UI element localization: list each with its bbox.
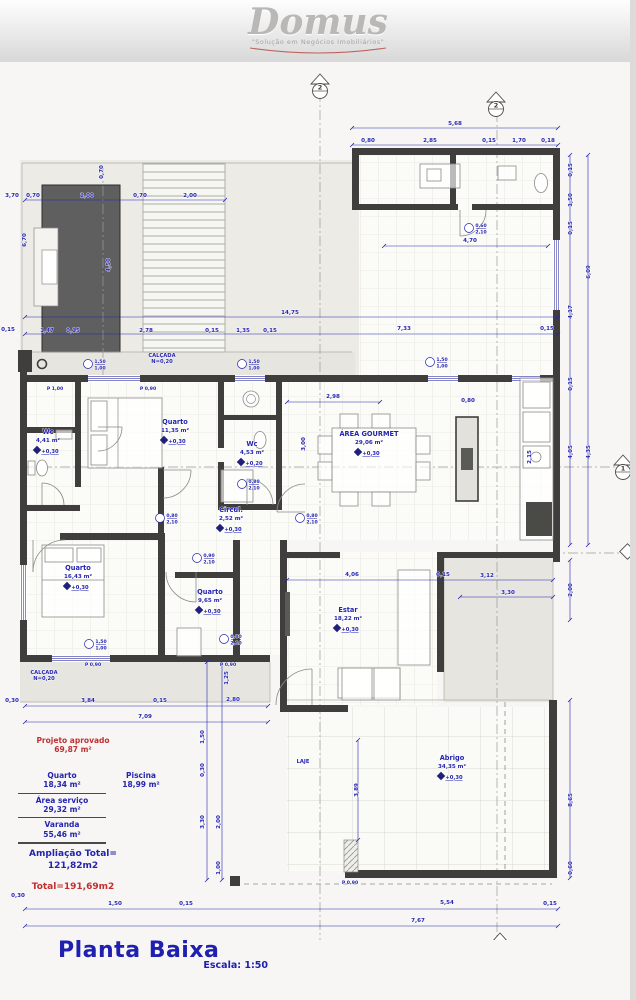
room-level: +0,20: [245, 461, 263, 467]
marker-number: 2: [318, 84, 323, 92]
wall: [230, 876, 240, 886]
door-tag: P 0,90: [140, 386, 156, 392]
room-area: 29,06 m²: [355, 439, 383, 446]
deck-hatch: [143, 163, 225, 352]
room-name: Abrigo: [440, 754, 465, 762]
dimension-label: 14,75: [281, 310, 299, 316]
dimension-label: 0,15: [568, 377, 574, 391]
dimension-label: 1,50: [200, 730, 206, 744]
dimension-label: 2,00: [216, 815, 222, 829]
logo-swoosh-icon: [248, 46, 388, 56]
legend-item-area-servico: Área serviço29,32 m²: [18, 794, 106, 819]
wall: [472, 204, 560, 210]
opening-tag-icon: [238, 360, 247, 369]
opening-height: 1,00: [436, 364, 447, 370]
room-name: Wc: [246, 440, 257, 448]
opening-height: 1,00: [248, 366, 259, 372]
dimension-label: 3,30: [200, 815, 206, 829]
dimension-label: 2,00: [183, 193, 197, 199]
dimension-label: 0,15: [543, 901, 557, 907]
furniture: [498, 166, 516, 180]
legend-item-piscina: Piscina18,99 m²: [106, 769, 176, 844]
room-area: 16,43 m²: [64, 573, 92, 580]
wall: [218, 415, 280, 420]
wall: [60, 533, 160, 540]
opening-height: 2,10: [475, 230, 486, 236]
opening-height: 1,00: [95, 646, 106, 652]
dimension-label: 1,70: [512, 138, 526, 144]
door-leaf-hatch: [344, 840, 358, 872]
annotation-label: N=0,20: [151, 359, 173, 365]
dimension-label: 6,70: [22, 233, 28, 247]
marker-triangle-icon: [491, 933, 509, 940]
furniture: [372, 492, 390, 506]
dimension-label: 0,18: [541, 138, 555, 144]
room-area: 18,22 m²: [334, 615, 362, 622]
opening-width: 0,80: [248, 479, 259, 485]
dimension-label: 0,70: [26, 193, 40, 199]
furniture: [372, 414, 390, 428]
dimension-label: 1,50: [108, 901, 122, 907]
wall: [345, 870, 557, 878]
dimension-label: 3,89: [354, 783, 360, 797]
dimension-label: 2,00: [80, 193, 94, 199]
furniture: [342, 668, 372, 700]
dimension-label: 2,98: [326, 394, 340, 400]
dimension-label: 0,15: [436, 572, 450, 578]
dimension-label: 1,50: [568, 193, 574, 207]
room-area: 2,52 m²: [219, 515, 244, 522]
opening-tag-icon: [465, 224, 474, 233]
marker-triangle-icon: [311, 74, 329, 84]
marker-number: 2: [494, 102, 499, 110]
total-area: Total=191,69m2: [18, 882, 128, 892]
opening-tag-icon: [238, 480, 247, 489]
ground-shade: [20, 662, 270, 702]
room-level: +0,30: [341, 627, 359, 633]
opening-width: 0,80: [306, 513, 317, 519]
floor-grid: [287, 707, 549, 871]
dimension-label: 4,35: [586, 445, 592, 459]
furniture: [91, 401, 107, 431]
approved-project-label: Projeto aprovado 69,87 m²: [18, 736, 128, 755]
dimension-label: 0,80: [361, 138, 375, 144]
room-level: +0,30: [362, 451, 380, 457]
dimension-label: 5,54: [440, 900, 454, 906]
pool-bench: [42, 250, 57, 284]
marker-number: 1: [621, 465, 626, 473]
wall: [280, 552, 340, 558]
room-level: +0,30: [224, 527, 242, 533]
room-name: Estar: [338, 606, 358, 614]
dimension-label: 0,15: [568, 221, 574, 235]
opening-height: 1,00: [94, 366, 105, 372]
furniture: [340, 414, 358, 428]
opening-width: 1,50: [436, 357, 447, 363]
dimension-label: 2,78: [139, 328, 153, 334]
dimension-label: 3,00: [301, 437, 307, 451]
opening-tag-icon: [193, 554, 202, 563]
dimension-label: 0,15: [263, 328, 277, 334]
dimension-label: 0,15: [482, 138, 496, 144]
dimension-label: 2,80: [226, 697, 240, 703]
title-block: Planta Baixa Escala: 1:50: [58, 938, 288, 971]
toilet: [37, 460, 48, 476]
room-level: +0,30: [445, 775, 463, 781]
opening-tag-icon: [296, 514, 305, 523]
dimension-label: 0,30: [11, 893, 25, 899]
dimension-label: 1,25: [224, 671, 230, 685]
room-name: Wc: [42, 428, 53, 436]
ground-shade: [20, 352, 355, 375]
door-tag: P 0,90: [342, 880, 358, 886]
opening-height: 2,10: [166, 520, 177, 526]
opening-width: 0,80: [166, 513, 177, 519]
dimension-label: 3,70: [5, 193, 19, 199]
wall: [158, 467, 164, 537]
opening-tag-icon: [426, 358, 435, 367]
dimension-label: 4,06: [345, 572, 359, 578]
dimension-label: 0,15: [66, 328, 80, 334]
dimension-label: 0,15: [179, 901, 193, 907]
room-level: +0,30: [71, 585, 89, 591]
annotation-label: N=0,20: [33, 676, 55, 682]
dimension-label: 0,30: [5, 698, 19, 704]
door-tag: P 0,90: [220, 662, 236, 668]
washer: [243, 391, 259, 407]
room-name: ÁREA GOURMET: [339, 429, 399, 438]
wall: [276, 375, 282, 510]
dimension-label: 0,15: [205, 328, 219, 334]
furniture: [523, 412, 550, 442]
dimension-label: 1,35: [236, 328, 250, 334]
opening-width: 1,50: [95, 639, 106, 645]
dimension-label: 0,30: [200, 763, 206, 777]
wall: [280, 705, 348, 712]
marker-triangle-icon: [487, 92, 505, 102]
furniture: [177, 628, 201, 656]
dimension-label: 3,12: [480, 573, 494, 579]
furniture: [28, 461, 35, 475]
dimension-label: 0,70: [99, 165, 105, 179]
dimension-label: 1,00: [216, 861, 222, 875]
dimension-label: 4,70: [463, 238, 477, 244]
page-edge-shadow: [630, 0, 636, 1000]
opening-width: 0,80: [230, 634, 241, 640]
room-name: Quarto: [197, 588, 223, 596]
opening-width: 1,50: [248, 359, 259, 365]
dimension-label: 7,09: [138, 714, 152, 720]
wall: [437, 552, 557, 558]
room-name: Quarto: [162, 418, 188, 426]
wall: [175, 572, 235, 578]
room-area: 4,53 m²: [240, 449, 265, 456]
wall: [218, 375, 224, 448]
room-level: +0,30: [41, 449, 59, 455]
room-level: +0,30: [168, 439, 186, 445]
ground-shade: [444, 556, 553, 702]
opening-height: 2,10: [230, 641, 241, 647]
dimension-label: 0,15: [1, 327, 15, 333]
door-tag: P 1,00: [47, 386, 63, 392]
furniture: [416, 436, 430, 454]
dimension-label: 4,17: [568, 305, 574, 319]
opening-width: 0,90: [203, 553, 214, 559]
furniture: [318, 436, 332, 454]
dimension-label: 4,50: [106, 258, 112, 272]
room-area: 11,35 m²: [161, 427, 189, 434]
dimension-label: 0,70: [133, 193, 147, 199]
dimension-label: 0,60: [568, 861, 574, 875]
opening-height: 2,10: [248, 486, 259, 492]
dimension-label: 0,15: [153, 698, 167, 704]
opening-tag-icon: [84, 360, 93, 369]
dimension-label: 0,15: [540, 326, 554, 332]
furniture: [318, 462, 332, 480]
dimension-label: 3,84: [81, 698, 95, 704]
opening-height: 2,10: [306, 520, 317, 526]
dimension-label: 4,05: [568, 445, 574, 459]
dimension-label: 5,68: [448, 121, 462, 127]
room-name: Quarto: [65, 564, 91, 572]
logo-tagline: "Solução em Negócios Imobiliários": [0, 38, 636, 46]
room-area: 9,65 m²: [198, 597, 223, 604]
legend-left-column: Quarto18,34 m² Área serviço29,32 m² Vara…: [18, 769, 106, 844]
furniture: [398, 570, 430, 665]
dimension-label: 1,47: [40, 328, 54, 334]
logo-wordmark: Domus: [0, 2, 636, 42]
wall: [352, 148, 359, 210]
dimension-label: 7,33: [397, 326, 411, 332]
legend-item-varanda: Varanda55,46 m²: [18, 818, 106, 844]
room-name: Circul.: [219, 506, 243, 514]
legend-item-quarto: Quarto18,34 m²: [18, 769, 106, 794]
page: { "logo": { "name": "Domus", "tagline": …: [0, 0, 636, 1000]
shaft: [526, 502, 552, 536]
wall: [158, 533, 165, 662]
dimension-label: 8,65: [568, 793, 574, 807]
wall: [549, 700, 557, 878]
opening-tag-icon: [156, 514, 165, 523]
opening-height: 2,10: [203, 560, 214, 566]
dimension-label: 0,15: [568, 163, 574, 177]
dimension-label: 2,00: [568, 583, 574, 597]
furniture: [340, 492, 358, 506]
dimension-label: 3,30: [501, 590, 515, 596]
furniture: [77, 548, 101, 562]
wall: [20, 505, 80, 511]
dimension-label: 0,80: [461, 398, 475, 404]
logo-band: Domus "Solução em Negócios Imobiliários": [0, 0, 636, 62]
dimension-label: 6,09: [586, 265, 592, 279]
door-tag: P 0,90: [85, 662, 101, 668]
wall: [553, 148, 560, 562]
furniture: [427, 169, 441, 181]
furniture: [416, 462, 430, 480]
furniture: [45, 548, 73, 562]
room-area: 4,41 m²: [36, 437, 61, 444]
dimension-label: 2,85: [423, 138, 437, 144]
wall: [437, 552, 444, 672]
furniture: [374, 668, 400, 700]
opening-tag-icon: [220, 635, 229, 644]
wall: [352, 204, 458, 210]
dimension-label: 7,67: [411, 918, 425, 924]
area-summary-table: Projeto aprovado 69,87 m² Quarto18,34 m²…: [18, 736, 188, 892]
room-area: 34,35 m²: [438, 763, 466, 770]
opening-width: 1,50: [94, 359, 105, 365]
dimension-label: 2,15: [527, 450, 533, 464]
toilet: [535, 174, 548, 193]
opening-width: 0,60: [475, 223, 486, 229]
ampliacao-total: Ampliação Total=121,82m2: [18, 849, 128, 872]
furniture: [523, 382, 550, 408]
room-level: +0,30: [203, 609, 221, 615]
annotation-label: LAJE: [297, 759, 310, 765]
island-cooktop: [461, 448, 473, 470]
wall: [18, 350, 32, 372]
tv-panel: [285, 592, 290, 636]
opening-tag-icon: [85, 640, 94, 649]
